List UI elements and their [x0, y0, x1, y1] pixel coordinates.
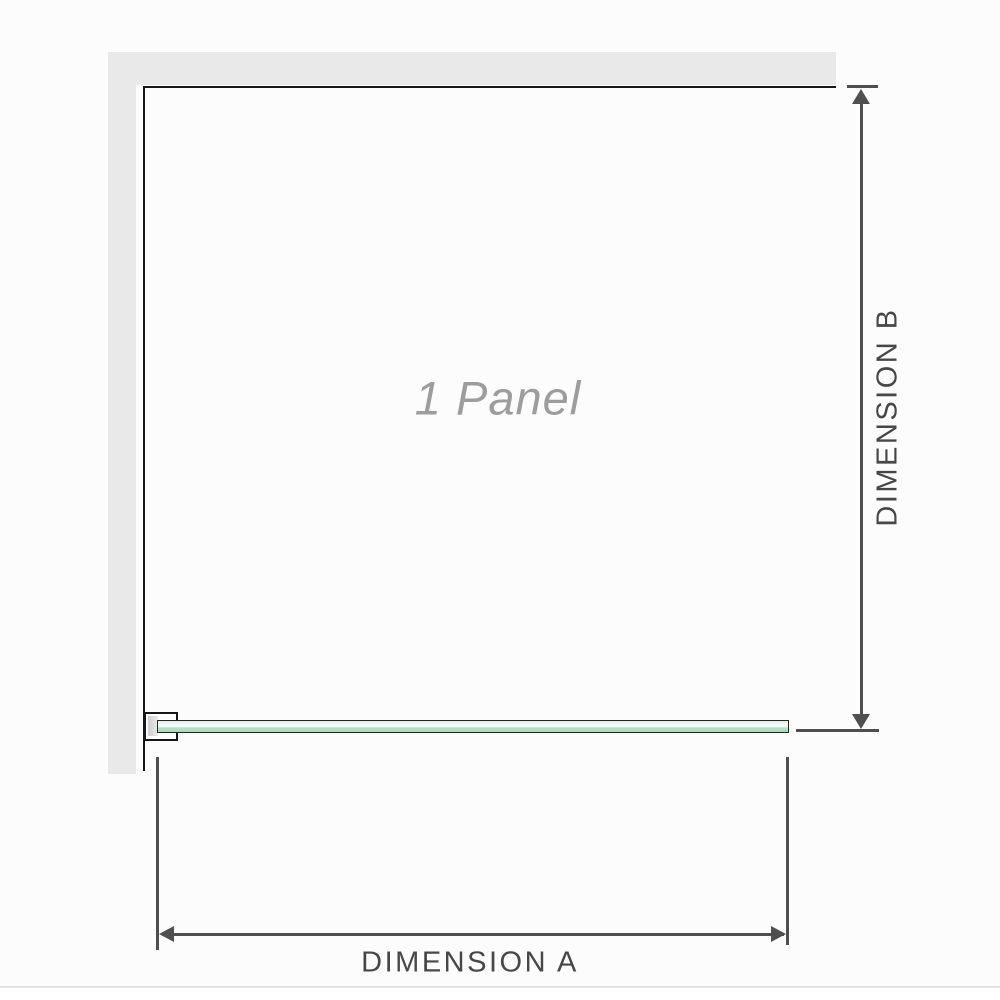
panel-count-label: 1 Panel: [415, 371, 581, 426]
arrow-up-icon: [852, 89, 870, 104]
enclosure-outline-top: [143, 86, 836, 88]
footer-strip: [0, 988, 1000, 1000]
dimension-b-label: DIMENSION B: [872, 307, 905, 526]
wall-left: [108, 52, 136, 774]
dimension-b-top-tick: [847, 85, 878, 88]
dimension-b-bottom-tick: [796, 729, 879, 732]
dimension-a-right-tick: [786, 757, 789, 945]
glass-panel: [157, 720, 789, 733]
arrow-down-icon: [852, 714, 870, 729]
shower-panel-dimension-diagram: DIMENSION B DIMENSION A 1 Panel: [0, 0, 1000, 1000]
wall-top: [108, 52, 836, 85]
dimension-a-line: [162, 933, 784, 936]
arrow-left-icon: [159, 926, 174, 942]
dimension-a-left-tick: [156, 757, 159, 950]
dimension-a-label: DIMENSION A: [361, 947, 579, 980]
enclosure-outline-left: [143, 86, 145, 771]
dimension-b-line: [860, 92, 863, 726]
arrow-right-icon: [771, 926, 786, 942]
